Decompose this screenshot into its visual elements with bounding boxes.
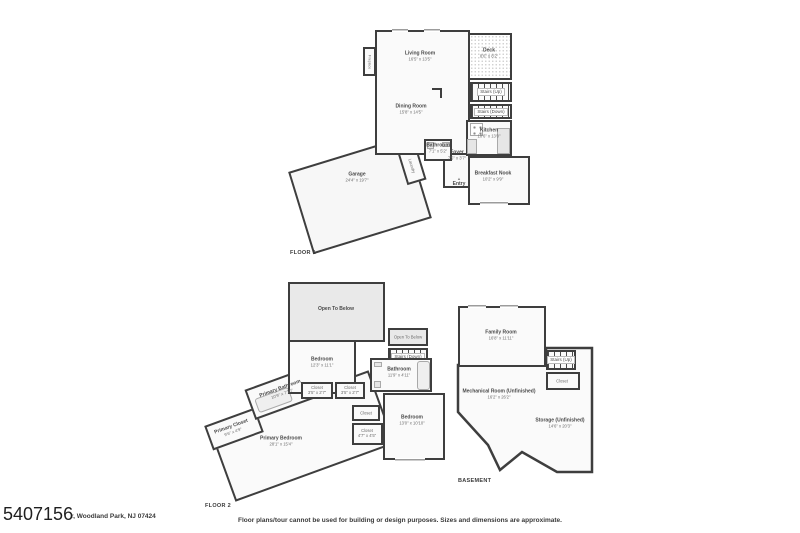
room-label-storage: Storage (Unfinished) 14'6" x 20'3" [535,418,584,429]
entry-marker: ▲ Entry [453,177,466,187]
window [480,201,508,205]
window [395,458,425,462]
stairs-up-basement: Stairs (Up) [546,350,576,370]
disclaimer-text: Floor plans/tour cannot be used for buil… [0,517,800,524]
room-label-family: Family Room 16'8" x 11'11" [485,330,516,341]
room-label-closet-c: Closet 4'7" x 4'5" [358,428,376,438]
open-to-below-large [288,282,385,342]
floor1-title: FLOOR 1 [290,250,316,256]
stairs-up-basement-label: Stairs (Up) [547,356,575,364]
stairs-up-floor1: Stairs (Up) [470,82,512,102]
room-label-living: Living Room 16'5" x 13'5" [405,51,435,62]
room-label-closet-basement: Closet [556,379,568,384]
window [500,304,518,308]
room-label-breakfast-nook: Breakfast Nook 10'2" x 9'9" [475,171,512,182]
window [392,28,408,32]
room-label-bathroom1: Bathroom 7'1" x 5'2" [426,143,450,154]
stairs-down-floor1: Stairs (Down) [470,104,512,119]
sink-icon-floor2 [374,362,382,367]
room-label-mechanical: Mechanical Room (Unfinished) 16'2" x 26'… [462,389,535,400]
label-open-below-large: Open To Below [318,306,354,312]
stairs-down-label: Stairs (Down) [474,108,507,116]
floorplan-page: Fireplace Stairs (Up) Stairs (Down) Livi… [0,0,800,533]
window [424,28,440,32]
room-label-closet-hall: Closet [360,411,372,416]
room-label-bedroom2: Bedroom 13'0" x 10'10" [399,415,424,426]
room-label-kitchen: Kitchen 10'6" x 13'0" [478,128,501,139]
room-label-garage: Garage 24'4" x 19'7" [346,172,369,183]
label-open-below-small: Open To Below [394,335,422,340]
room-label-dining: Dining Room 15'8" x 14'5" [395,104,426,115]
room-bedroom2 [383,393,445,460]
room-label-closet-a: Closet 3'5" x 2'7" [308,385,326,395]
floor2-title: FLOOR 2 [205,503,231,509]
interior-wall [440,88,442,98]
room-label-bathroom-floor2: Bathroom 11'9" x 4'11" [387,367,411,378]
room-living-dining [375,30,470,155]
room-label-primary-bedroom: Primary Bedroom 28'1" x 15'4" [260,436,302,447]
stairs-up-label: Stairs (Up) [477,88,505,96]
room-label-bedroom-floor2: Bedroom 12'3" x 11'1" [311,357,334,368]
bathtub-icon-floor2 [417,361,430,390]
toilet-icon-floor2 [374,381,381,388]
window [468,304,486,308]
fireplace-icon: Fireplace [363,47,376,76]
basement-title: BASEMENT [458,478,491,484]
fireplace-label: Fireplace [368,54,372,68]
room-label-closet-b: Closet 3'5" x 2'7" [341,385,359,395]
room-label-foyer: Foyer 7'5" x 3'7" [448,150,466,161]
room-label-deck: Deck 8'6" x 8'2" [480,48,498,59]
kitchen-sink-icon [467,139,477,154]
